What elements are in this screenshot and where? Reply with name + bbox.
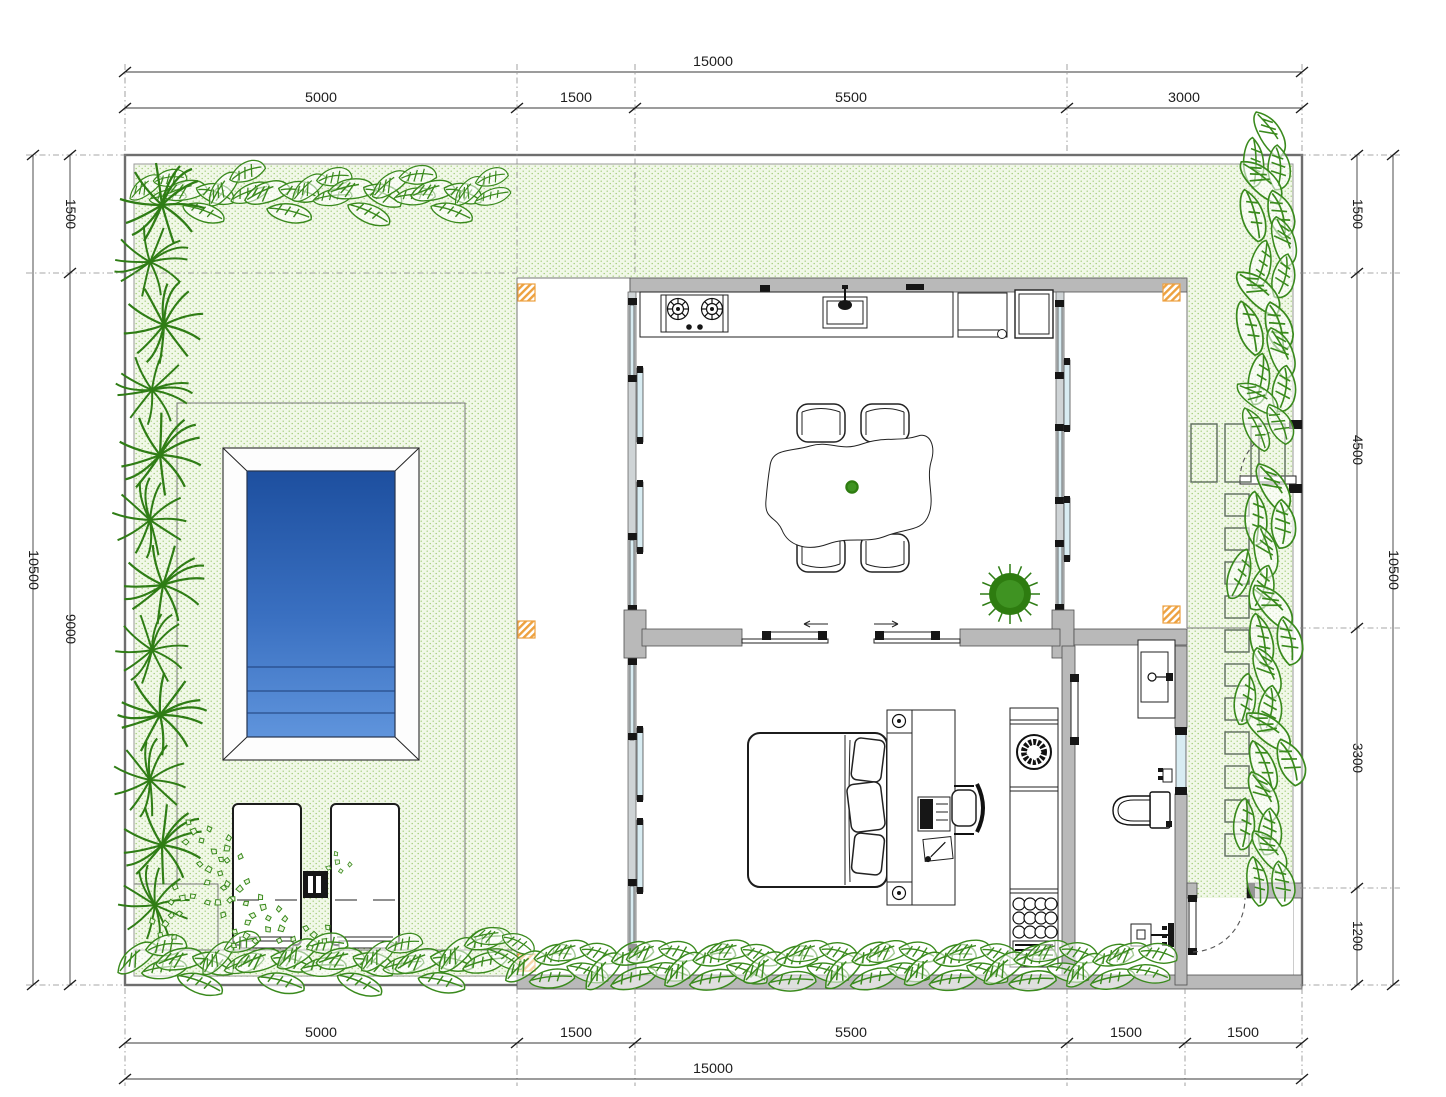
sink-faucet (838, 300, 852, 310)
potted-plant (980, 564, 1040, 624)
dimension-top-total: 15000 (119, 54, 1308, 77)
dim-label: 1500 (1110, 1025, 1142, 1040)
dining-chair (861, 404, 909, 442)
bed (748, 710, 912, 905)
floor-plan-drawing: 15000 5000 1500 5500 3000 5000 1500 5500… (0, 0, 1446, 1097)
refrigerator (1015, 290, 1053, 338)
column (518, 284, 535, 301)
dim-label: 3000 (1168, 90, 1200, 105)
dim-label: 5500 (835, 1025, 867, 1040)
column (518, 621, 535, 638)
table-plant (845, 480, 858, 493)
desk (912, 710, 955, 905)
sun-lounger (331, 804, 399, 948)
dimension-top-chain: 5000 1500 5500 3000 (119, 90, 1308, 113)
bedroom (748, 710, 983, 905)
dim-label: 1500 (560, 1025, 592, 1040)
dimension-left: 10500 1500 9000 (26, 150, 78, 990)
laptop (918, 797, 950, 831)
headboard (887, 710, 912, 905)
dimension-bottom-chain: 5000 1500 5500 1500 1500 (119, 1025, 1308, 1048)
toilet (1113, 792, 1172, 828)
dimension-bottom-total: 15000 (119, 1061, 1308, 1084)
bathroom-vanity (1138, 640, 1175, 718)
dim-label: 15000 (693, 1061, 733, 1076)
stove-knob (686, 324, 692, 330)
column (1163, 284, 1180, 301)
notebook (923, 837, 953, 863)
dim-label: 15000 (693, 54, 733, 69)
floor-plan-page: 15000 5000 1500 5500 3000 5000 1500 5500… (0, 0, 1446, 1097)
dim-label: 5000 (305, 1025, 337, 1040)
dim-label: 10500 (1386, 550, 1401, 590)
dimension-right: 1500 4500 3300 1200 10500 (1350, 150, 1401, 990)
east-wall-upper (1175, 646, 1187, 728)
lounger-side-table (303, 871, 328, 898)
dim-label: 1500 (63, 199, 78, 229)
swimming-pool (223, 448, 419, 760)
dim-label: 3300 (1350, 743, 1365, 773)
kitchen-stove (661, 295, 728, 332)
column (1163, 606, 1180, 623)
stove-knob (697, 324, 703, 330)
dim-label: 5000 (305, 90, 337, 105)
dim-label: 1200 (1350, 921, 1365, 951)
wardrobe-closet (1010, 708, 1058, 967)
dim-label: 1500 (560, 90, 592, 105)
dining-chair (797, 404, 845, 442)
bathroom-window (1175, 727, 1187, 795)
bathroom-sliding-door (1070, 674, 1079, 745)
washing-machine (1017, 735, 1051, 769)
dim-label: 10500 (26, 550, 41, 590)
dim-label: 1500 (1227, 1025, 1259, 1040)
pool-water (247, 471, 395, 737)
dim-label: 1500 (1350, 199, 1365, 229)
dim-label: 5500 (835, 90, 867, 105)
kitchen (640, 285, 1053, 339)
entry-vestibule-floor (1187, 898, 1293, 975)
dim-label: 4500 (1350, 435, 1365, 465)
dim-label: 9000 (63, 614, 78, 644)
kitchen-island-cart (958, 293, 1007, 339)
